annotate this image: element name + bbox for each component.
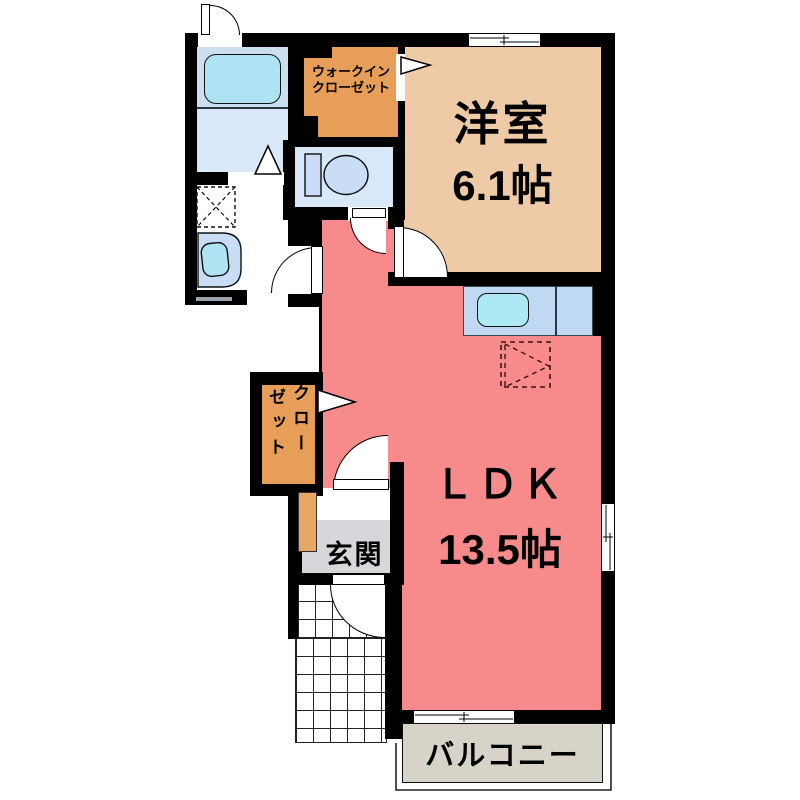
wall: [593, 286, 615, 336]
sliding-window-icon: [468, 33, 541, 47]
wic-label-line2: クローゼット: [302, 80, 400, 96]
folding-door-icon: [315, 387, 359, 417]
ldk-size: 13.5帖: [395, 516, 605, 577]
wic-label: ウォークイン クローゼット: [302, 64, 400, 108]
bath-partition-line: [197, 107, 288, 109]
door-leaf: [394, 226, 404, 278]
approach-tiles: [295, 637, 387, 743]
floorplan-page: { "rooms": { "wic": { "line1": "ウォークイン",…: [0, 0, 800, 800]
wall: [319, 305, 322, 377]
door-leaf: [352, 208, 386, 218]
closet-label-right-column: クロー: [287, 384, 312, 459]
area-balcony: バルコニー: [402, 723, 603, 783]
western-room-label: 洋室: [404, 88, 601, 154]
door-leaf: [311, 246, 323, 294]
floor-plan: バルコニー ウォークイン クローゼット 洋室 6.1帖 クロー ゼット 玄関 Ｌ…: [0, 0, 800, 800]
washbasin-icon: [196, 231, 244, 291]
toilet-icon: [300, 150, 390, 205]
wall: [601, 33, 615, 724]
wall: [288, 583, 298, 639]
wic-label-line1: ウォークイン: [302, 64, 400, 80]
kitchen-divider-line: [555, 286, 557, 336]
door-opening: [198, 33, 242, 47]
washroom-window-line: [196, 297, 232, 301]
door-swing-arc: [210, 5, 240, 35]
hall-corridor: [317, 488, 390, 522]
door-leaf: [333, 479, 389, 490]
door-leaf: [201, 4, 210, 35]
kitchen-sink-icon: [477, 293, 529, 327]
refrigerator-space-icon: [498, 339, 554, 391]
genkan-label: 玄関: [312, 533, 397, 572]
balcony-label: バルコニー: [425, 732, 579, 774]
washing-machine-space-icon: [195, 185, 239, 231]
bathroom-folding-door-icon: [250, 143, 286, 177]
western-room-size: 6.1帖: [404, 152, 601, 213]
room-wic: [318, 115, 398, 137]
bathtub-icon: [204, 54, 281, 104]
folding-door-icon: [398, 54, 434, 78]
entrance-door-leaf: [332, 574, 385, 585]
closet-label-left-column: ゼット: [263, 388, 288, 463]
ldk-label: ＬＤＫ: [395, 452, 605, 510]
